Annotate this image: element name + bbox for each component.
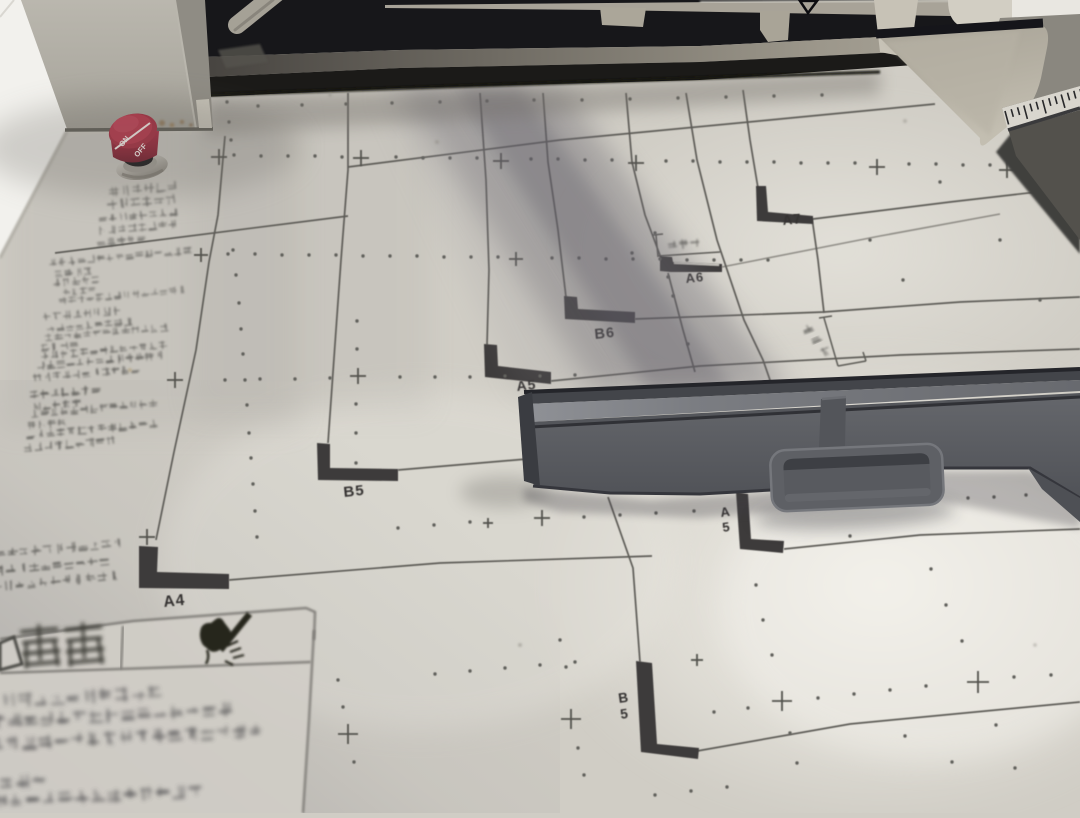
svg-text:A7: A7 [782,211,803,228]
svg-text:A4: A4 [163,592,186,611]
svg-text:B: B [617,690,630,706]
svg-text:B5: B5 [343,482,366,501]
